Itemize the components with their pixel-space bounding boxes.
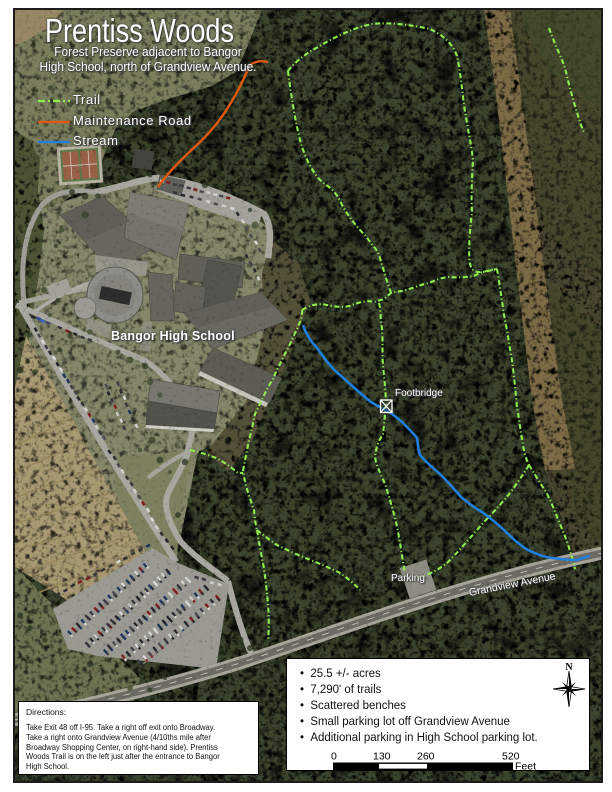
svg-text:130: 130 [373,750,391,762]
svg-text:0: 0 [331,750,337,762]
svg-text:Feet: Feet [515,760,536,772]
svg-text:260: 260 [417,750,435,762]
